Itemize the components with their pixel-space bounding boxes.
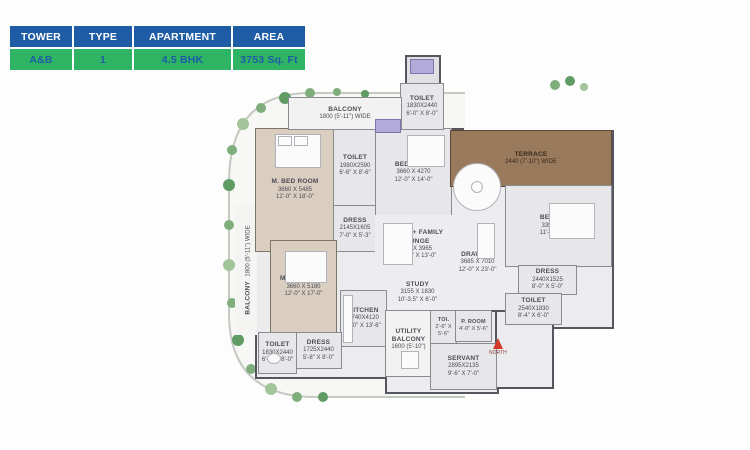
north-arrow-icon: NORTH	[489, 338, 507, 356]
floor-plan: M. BED ROOM 3660 X 5485 12'-0" X 18'-0" …	[215, 55, 635, 415]
wc-fixture	[267, 353, 281, 364]
room-toi: TOI. 2'-6" X 5'-6"	[430, 310, 457, 345]
floor-plan-page: TOWER TYPE APARTMENT AREA A&B 1 4.5 BHK …	[0, 0, 750, 450]
pillow	[278, 136, 292, 146]
sofa	[477, 223, 495, 259]
room-servant: SERVANT 2895X2135 9'-6" X 7'-0"	[430, 343, 497, 390]
room-toilet-master-1: TOILET 1980X2590 6'-6" X 8'-6"	[333, 125, 377, 207]
washer	[401, 351, 419, 369]
bed-bedroom-2	[407, 135, 445, 167]
kitchen-counter	[343, 295, 353, 343]
lift-box	[410, 59, 434, 74]
table-header-type: TYPE	[74, 26, 132, 47]
bed-bedroom-3	[549, 203, 595, 239]
room-balcony-left: BALCONY 1800 (5'-11") WIDE	[235, 205, 257, 335]
table-header-tower: TOWER	[10, 26, 72, 47]
room-dress-master-2: DRESS 1725X2440 5'-8" X 8'-0"	[295, 332, 342, 369]
table-header-apartment: APARTMENT	[134, 26, 231, 47]
table-value-tower: A&B	[10, 49, 72, 70]
room-dress-master-1: DRESS 2145X1605 7'-0" X 5'-3"	[333, 205, 377, 252]
table-value-type: 1	[74, 49, 132, 70]
pillow	[294, 136, 308, 146]
table-header-area: AREA	[233, 26, 305, 47]
bed-master-2	[285, 251, 327, 283]
room-p-room: P. ROOM 4'-0" X 5'-6"	[455, 310, 492, 342]
planter-box	[375, 119, 401, 133]
dining-table	[383, 223, 413, 265]
room-toilet-top: TOILET 1830X2440 6'-0" X 8'-0"	[400, 83, 444, 130]
staircase-center	[471, 181, 483, 193]
room-toilet-bedroom-3: TOILET 2540X1830 8'-4" X 6'-0"	[505, 293, 562, 325]
room-dress-bedroom-3: DRESS 2440X1525 8'-0" X 5'-0"	[518, 265, 577, 295]
room-study: STUDY 3155 X 1830 10'-3.5" X 6'-0"	[385, 275, 450, 310]
